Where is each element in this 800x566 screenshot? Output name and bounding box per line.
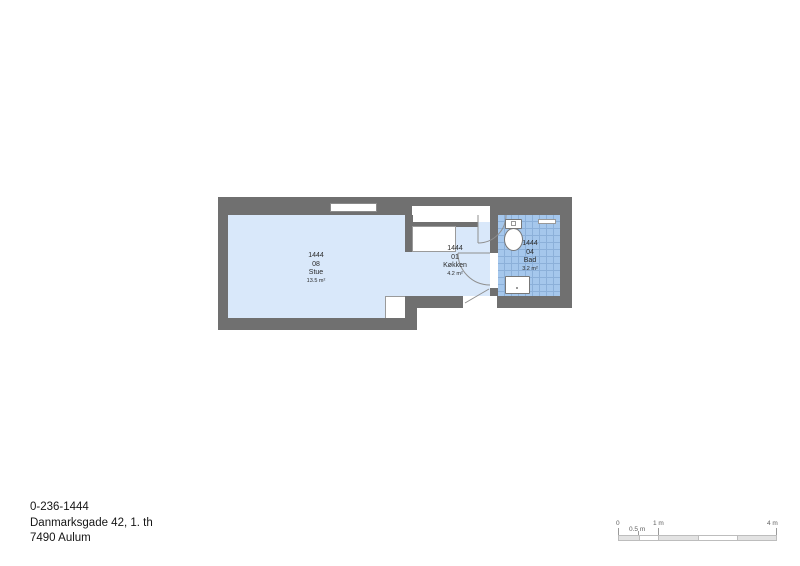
wall-top bbox=[218, 197, 572, 215]
scale-tick-0 bbox=[618, 528, 619, 535]
window bbox=[330, 203, 377, 212]
wall-bottom-right-a bbox=[405, 296, 463, 308]
stue-area: 13.5 m² bbox=[266, 278, 366, 285]
scale-bar bbox=[618, 535, 777, 541]
stue-label: 1444 08 Stue 13.5 m² bbox=[266, 252, 366, 285]
scale-tick-1m bbox=[658, 528, 659, 535]
scale-label-1m: 1 m bbox=[653, 520, 664, 527]
bad-unit: 04 bbox=[495, 249, 565, 258]
scale-tick-4m bbox=[776, 528, 777, 535]
address-street: Danmarksgade 42, 1. th bbox=[30, 516, 153, 532]
sink-drain bbox=[516, 287, 518, 289]
kokken-number: 1444 bbox=[415, 245, 495, 254]
scale-label-0: 0 bbox=[616, 520, 620, 527]
kokken-area: 4.2 m² bbox=[415, 271, 495, 278]
address-id: 0-236-1444 bbox=[30, 500, 153, 516]
wall-bad-left-stub bbox=[490, 288, 498, 296]
kokken-unit: 01 bbox=[415, 254, 495, 263]
stue-number: 1444 bbox=[266, 252, 366, 261]
shelf-icon bbox=[538, 219, 556, 224]
kokken-label: 1444 01 Køkken 4.2 m² bbox=[415, 245, 495, 278]
bad-label: 1444 04 Bad 3.2 m² bbox=[495, 240, 565, 273]
toilet-tank-button bbox=[511, 221, 516, 226]
stue-unit: 08 bbox=[266, 261, 366, 270]
wall-left bbox=[218, 197, 228, 330]
scale-segment-half-1m bbox=[639, 536, 659, 540]
wall-bottom-left bbox=[218, 318, 407, 330]
floor-plan-page: 1444 08 Stue 13.5 m² 1444 01 Køkken 4.2 … bbox=[0, 0, 800, 566]
scale-segment-2m-3m bbox=[698, 536, 738, 540]
scale-label-4m: 4 m bbox=[767, 520, 778, 527]
stue-name: Stue bbox=[266, 269, 366, 278]
sink-icon bbox=[505, 276, 530, 294]
bad-number: 1444 bbox=[495, 240, 565, 249]
bad-name: Bad bbox=[495, 257, 565, 266]
entrance-landing bbox=[412, 206, 490, 222]
address-block: 0-236-1444 Danmarksgade 42, 1. th 7490 A… bbox=[30, 500, 153, 547]
kokken-name: Køkken bbox=[415, 262, 495, 271]
scale-bar-group: 0 0.5 m 1 m 4 m bbox=[610, 514, 785, 548]
floor-plan: 1444 08 Stue 13.5 m² 1444 01 Køkken 4.2 … bbox=[0, 0, 800, 566]
address-city: 7490 Aulum bbox=[30, 531, 153, 547]
bad-area: 3.2 m² bbox=[495, 266, 565, 273]
